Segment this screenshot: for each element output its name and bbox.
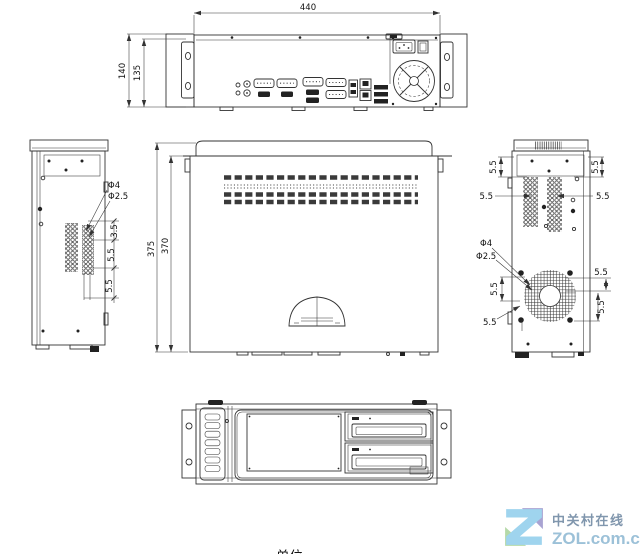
rear-io-connectors bbox=[236, 78, 388, 104]
drive-bay-1 bbox=[345, 412, 433, 441]
right-side-view: 5.5 5.5 5.5 5.5 Φ4 Φ2.5 5.5 5.5 5.5 5.5 bbox=[476, 140, 611, 358]
dim-fan-side: 5.5 bbox=[597, 300, 607, 314]
vent-hole-grid bbox=[523, 177, 538, 227]
rear-view: 440 140 135 bbox=[118, 3, 467, 111]
vent-hole-grid bbox=[82, 225, 94, 275]
drawing-notes: 单位: mm 比例: 1:2 bbox=[276, 512, 331, 554]
callout-left-hole-dia-inner: Φ2.5 bbox=[108, 192, 128, 202]
vent-hole-grid bbox=[547, 177, 562, 232]
dim-left-pitch-mid: 5.5 bbox=[107, 248, 117, 262]
hdmi-port-icon bbox=[306, 98, 319, 104]
dim-right-mid-right: 5.5 bbox=[596, 192, 610, 202]
callout-left-hole-dia: Φ4 bbox=[108, 181, 120, 191]
top-view: 375 370 bbox=[147, 141, 452, 356]
callout-right-hole-dia-inner: Φ2.5 bbox=[476, 252, 496, 262]
dim-rear-width: 440 bbox=[300, 3, 316, 13]
usb-stack-icon bbox=[349, 80, 358, 97]
expansion-slot-icon bbox=[374, 92, 388, 97]
top-dome-bulge bbox=[289, 297, 345, 326]
dim-right-top-left: 5.5 bbox=[489, 160, 499, 174]
left-side-view: Φ4 Φ2.5 3.5 5.5 5.5 bbox=[30, 140, 128, 352]
front-window bbox=[247, 414, 341, 471]
dim-top-depth-outer: 375 bbox=[147, 241, 157, 257]
dim-left-pitch-top: 3.5 bbox=[110, 224, 120, 238]
drive-bay-2 bbox=[345, 443, 433, 474]
logo-z-shape bbox=[506, 509, 542, 545]
dim-right-top-right: 5.5 bbox=[591, 160, 601, 174]
vent-hole-grid bbox=[65, 223, 78, 272]
expansion-slot-icon bbox=[374, 99, 388, 104]
callout-right-hole-dia: Φ4 bbox=[480, 239, 492, 249]
front-view bbox=[182, 400, 451, 484]
front-left-ear bbox=[182, 410, 196, 478]
front-grille bbox=[200, 408, 225, 480]
hdmi-port-icon bbox=[306, 90, 319, 96]
watermark: 中关村在线 ZOL.com.cn bbox=[503, 506, 640, 549]
dim-rear-height-inner: 135 bbox=[133, 65, 143, 81]
dim-fan-left: 5.5 bbox=[490, 282, 500, 296]
dim-fan-right: 5.5 bbox=[594, 268, 608, 278]
dim-rear-height-outer: 140 bbox=[118, 63, 128, 79]
unit-note: 单位: mm bbox=[276, 548, 331, 554]
hdmi-port-icon bbox=[258, 92, 270, 98]
rear-panel-body bbox=[194, 35, 440, 107]
rear-right-ear bbox=[440, 34, 467, 107]
rear-psu bbox=[390, 36, 437, 105]
watermark-site-url: ZOL.com.cn bbox=[552, 529, 640, 549]
hdmi-port-icon bbox=[281, 92, 293, 98]
dim-right-mid-left: 5.5 bbox=[479, 192, 493, 202]
dim-left-pitch-bottom: 5.5 bbox=[105, 279, 115, 293]
drawing-canvas: 440 140 135 bbox=[0, 0, 640, 554]
dim-fan-bottom: 5.5 bbox=[483, 318, 497, 328]
dim-top-depth-inner: 370 bbox=[161, 238, 171, 254]
expansion-slot-icon bbox=[374, 85, 388, 90]
technical-drawing: 440 140 135 bbox=[0, 0, 640, 554]
zol-logo-icon bbox=[503, 506, 545, 548]
front-right-ear bbox=[437, 410, 451, 478]
watermark-site-name: 中关村在线 bbox=[552, 510, 640, 529]
rear-left-ear bbox=[166, 34, 194, 107]
